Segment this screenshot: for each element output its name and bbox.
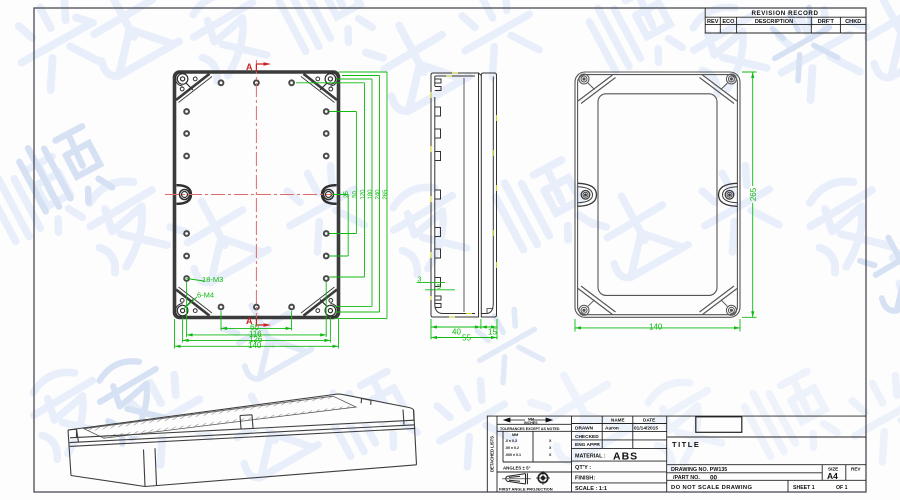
svg-text:DRF'T: DRF'T xyxy=(818,19,835,25)
svg-text:.000 ± 0.1: .000 ± 0.1 xyxy=(505,453,521,457)
svg-text:3: 3 xyxy=(418,277,422,284)
svg-text:DATE: DATE xyxy=(643,418,655,423)
svg-text:DESCRIPTION: DESCRIPTION xyxy=(755,19,793,25)
svg-text:REV: REV xyxy=(707,19,719,25)
svg-text:NAME: NAME xyxy=(611,418,625,423)
svg-text:265: 265 xyxy=(749,187,758,201)
svg-text:40: 40 xyxy=(452,328,461,337)
svg-text:ENG APPR: ENG APPR xyxy=(575,442,600,448)
svg-text:ABS: ABS xyxy=(613,451,638,463)
svg-text:240: 240 xyxy=(376,189,382,200)
svg-text:/PART NO.: /PART NO. xyxy=(673,475,700,481)
svg-text:00: 00 xyxy=(710,474,718,481)
svg-text:25: 25 xyxy=(344,191,350,198)
svg-text:REV: REV xyxy=(851,467,861,472)
svg-text:REVISION RECORD: REVISION RECORD xyxy=(751,10,818,17)
svg-text:INCHES: INCHES xyxy=(524,421,538,425)
svg-text:18-M3: 18-M3 xyxy=(202,275,223,284)
svg-text:15: 15 xyxy=(488,328,497,337)
svg-text:MM: MM xyxy=(512,433,518,437)
svg-text:FIRST ANGLE PROJECTION: FIRST ANGLE PROJECTION xyxy=(499,487,553,492)
svg-text:DRAWING NO. PW135: DRAWING NO. PW135 xyxy=(671,467,727,473)
svg-text:ANGLES ± 5°: ANGLES ± 5° xyxy=(503,466,531,471)
svg-text:FINISH:: FINISH: xyxy=(575,476,595,482)
svg-text:DO NOT SCALE DRAWING: DO NOT SCALE DRAWING xyxy=(671,485,753,491)
svg-text:120: 120 xyxy=(361,189,367,200)
svg-text:TOLERANCES EXCEPT AS NOTED: TOLERANCES EXCEPT AS NOTED xyxy=(500,427,560,431)
svg-text:A4: A4 xyxy=(827,471,838,481)
svg-text:.00 ± 0.2: .00 ± 0.2 xyxy=(505,446,519,450)
svg-text:01/14/2015: 01/14/2015 xyxy=(634,426,658,432)
svg-text:DETACHED LISTS: DETACHED LISTS xyxy=(490,436,495,472)
svg-text:55: 55 xyxy=(462,334,471,343)
svg-text:180: 180 xyxy=(368,189,374,200)
svg-text:SHEET 1: SHEET 1 xyxy=(793,485,815,491)
svg-text:140: 140 xyxy=(248,341,262,350)
svg-text:SCALE : 1:1: SCALE : 1:1 xyxy=(575,486,607,492)
svg-text:DRAWN: DRAWN xyxy=(575,426,594,432)
svg-text:OF 1: OF 1 xyxy=(836,485,848,491)
svg-text:CHKD: CHKD xyxy=(845,19,861,25)
svg-text:265: 265 xyxy=(383,189,389,200)
svg-text:A: A xyxy=(246,62,253,72)
svg-text:50: 50 xyxy=(352,191,358,198)
svg-text:CHECKED: CHECKED xyxy=(575,434,599,440)
svg-text:5: 5 xyxy=(437,284,441,291)
svg-text:Aaron: Aaron xyxy=(605,426,619,432)
svg-text:QT'Y :: QT'Y : xyxy=(575,465,591,471)
svg-text:MATERIAL :: MATERIAL : xyxy=(575,454,606,460)
svg-text:140: 140 xyxy=(649,323,663,332)
svg-text:6-M4: 6-M4 xyxy=(197,291,214,300)
svg-text:ECO: ECO xyxy=(722,19,735,25)
svg-text:.0 ± 0.3: .0 ± 0.3 xyxy=(505,439,517,443)
svg-text:TITLE: TITLE xyxy=(672,440,700,449)
